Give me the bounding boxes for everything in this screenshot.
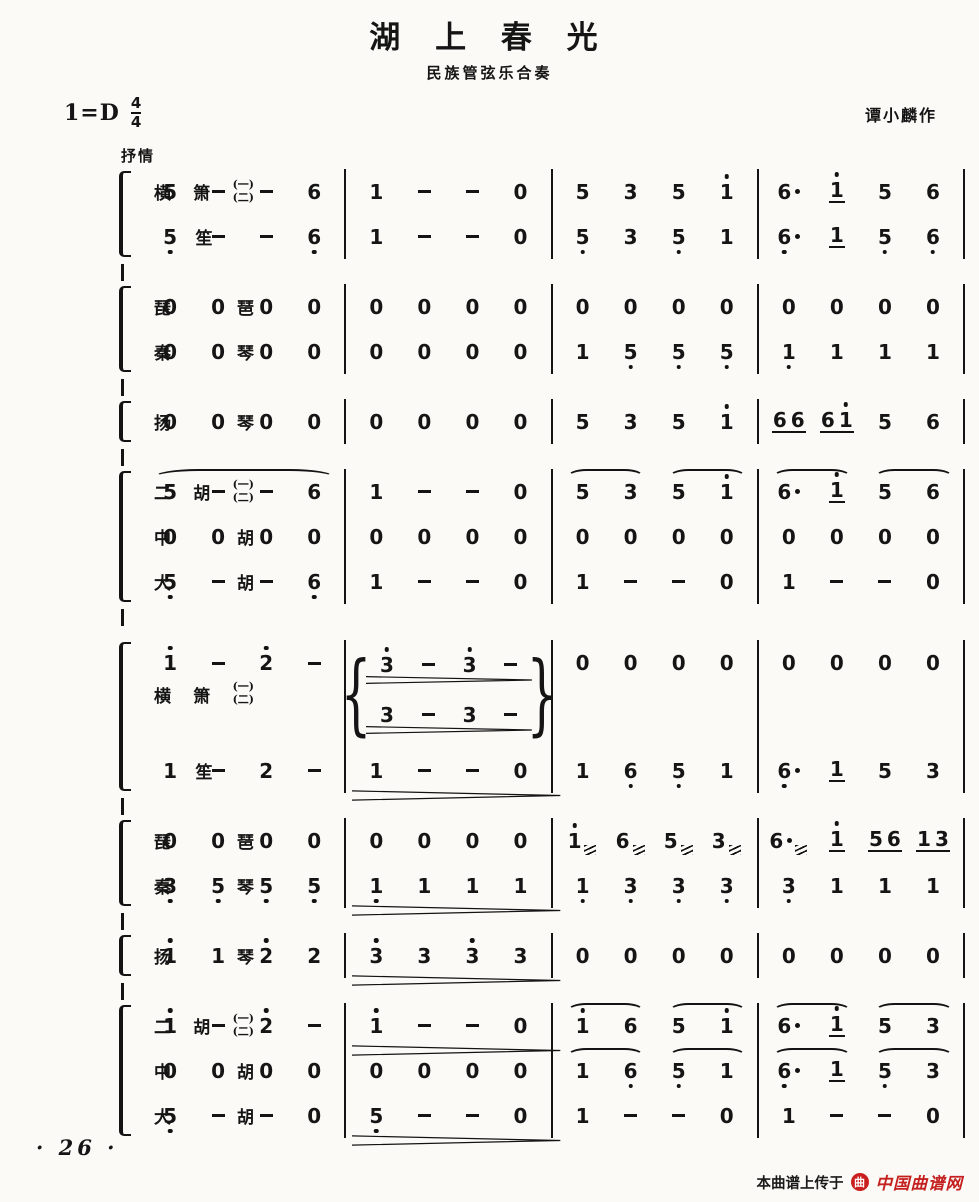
beat-row: 5351 bbox=[553, 399, 757, 444]
beat-row: 0000 bbox=[759, 514, 963, 559]
beat-group: 0 bbox=[925, 572, 941, 592]
note: 6 bbox=[777, 1016, 791, 1036]
beat: 5 bbox=[655, 412, 703, 432]
note: 6 bbox=[791, 410, 805, 430]
measure: 0000 bbox=[759, 933, 965, 978]
system-1: 横箫(一)(二)561053516156笙561053516156琵琶00000… bbox=[10, 169, 965, 604]
measure: 50 bbox=[346, 1093, 552, 1138]
beat-group: 0 bbox=[464, 342, 480, 362]
beat-group bbox=[307, 769, 322, 772]
measure: 3111 bbox=[759, 863, 965, 908]
beat: 0 bbox=[146, 297, 194, 317]
beat: 3 bbox=[449, 705, 490, 725]
beat-group: 0 bbox=[719, 572, 735, 592]
beat: 13 bbox=[909, 829, 957, 853]
note: 1 bbox=[720, 227, 734, 247]
beat-row: 0000 bbox=[346, 1048, 550, 1093]
beat: 0 bbox=[607, 653, 655, 673]
note: 3 bbox=[417, 946, 431, 966]
note: 1 bbox=[782, 572, 796, 592]
rest-note: 0 bbox=[720, 572, 734, 592]
group-bracket bbox=[119, 642, 131, 791]
note: 1 bbox=[720, 482, 734, 502]
beat: 0 bbox=[655, 653, 703, 673]
beat-group: 1 bbox=[368, 182, 384, 202]
beat-group: 5 bbox=[671, 412, 687, 432]
tremolo-mark bbox=[584, 845, 596, 855]
system-2: 横箫(一)(二)12{3333}00000000笙121016516153琵琶0… bbox=[10, 640, 965, 1138]
beat-group: 5 bbox=[575, 482, 591, 502]
note: 5 bbox=[672, 482, 686, 502]
note: 5 bbox=[211, 876, 225, 896]
note: 5 bbox=[369, 1106, 383, 1126]
beat: 1 bbox=[813, 1059, 861, 1083]
beat: 5 bbox=[655, 1061, 703, 1081]
note: 2 bbox=[259, 653, 273, 673]
beat-group: 6 bbox=[306, 572, 322, 592]
rest-note: 0 bbox=[926, 527, 940, 547]
rest-note: 0 bbox=[830, 946, 844, 966]
rest-note: 0 bbox=[465, 412, 479, 432]
beat-row: 10 bbox=[346, 214, 550, 259]
beat: 0 bbox=[242, 1061, 290, 1081]
beat: 0 bbox=[400, 412, 448, 432]
beat: 0 bbox=[909, 946, 957, 966]
beat-group: 3 bbox=[462, 705, 478, 725]
sustain-dash bbox=[466, 769, 479, 772]
beat: 5 bbox=[655, 761, 703, 781]
beat-group: 0 bbox=[162, 297, 178, 317]
note: 1 bbox=[576, 1106, 590, 1126]
watermark: 本曲谱上传于 曲 中国曲谱网 bbox=[757, 1170, 964, 1194]
beat-group bbox=[623, 580, 638, 583]
notation-row-erhu: 二胡(一)(二)561053516156 bbox=[140, 469, 965, 514]
beat bbox=[242, 580, 290, 583]
rest-note: 0 bbox=[369, 831, 383, 851]
note: 5 bbox=[576, 182, 590, 202]
site-name-link[interactable]: 中国曲谱网 bbox=[876, 1170, 964, 1194]
note: 6 bbox=[777, 227, 791, 247]
sustain-dash bbox=[212, 580, 225, 583]
voice-brace-left: { bbox=[352, 641, 361, 747]
beat: 1 bbox=[703, 412, 751, 432]
key-signature: 1=D bbox=[64, 100, 120, 126]
beat-group: 2 bbox=[306, 946, 322, 966]
beat-group: 13 bbox=[916, 829, 950, 853]
rest-note: 0 bbox=[830, 297, 844, 317]
note: 6 bbox=[926, 227, 940, 247]
group-bracket bbox=[119, 401, 131, 442]
beat: 5 bbox=[655, 482, 703, 502]
rest-note: 0 bbox=[514, 482, 528, 502]
beat: 0 bbox=[448, 527, 496, 547]
rest-note: 0 bbox=[878, 527, 892, 547]
beat: 0 bbox=[909, 297, 957, 317]
note: 6 bbox=[821, 410, 835, 430]
beat-group: 1 bbox=[829, 225, 845, 249]
note: 1 bbox=[782, 342, 796, 362]
beat-group: 6 bbox=[623, 1061, 639, 1081]
beat-group bbox=[417, 1114, 432, 1117]
beat: 0 bbox=[703, 297, 751, 317]
beat-row: 0000 bbox=[759, 284, 963, 329]
beat-group: 1 bbox=[368, 1016, 384, 1036]
augmentation-dot bbox=[795, 489, 800, 494]
beat: 5 bbox=[242, 876, 290, 896]
beat-group: 1 bbox=[575, 572, 591, 592]
beat-group: 1 bbox=[575, 876, 591, 896]
beat: 5 bbox=[703, 342, 751, 362]
measure: 12 bbox=[140, 640, 346, 748]
rest-note: 0 bbox=[672, 653, 686, 673]
notation-row-qinqin: 秦琴0000000015551111 bbox=[140, 329, 965, 374]
rest-note: 0 bbox=[417, 527, 431, 547]
beat: 0 bbox=[194, 1061, 242, 1081]
beat: 5 bbox=[146, 227, 194, 247]
beat: 5 bbox=[861, 482, 909, 502]
sustain-dash bbox=[466, 1114, 479, 1117]
page-title: 湖 上 春 光 bbox=[0, 12, 979, 57]
beat-group bbox=[877, 580, 892, 583]
beat bbox=[813, 580, 861, 583]
beat: 1 bbox=[813, 829, 861, 853]
beat: 1 bbox=[194, 946, 242, 966]
beat-group: 0 bbox=[671, 527, 687, 547]
beat-group: 6 bbox=[623, 761, 639, 781]
beat: 5 bbox=[861, 227, 909, 247]
group-bracket bbox=[119, 286, 131, 372]
beat: 0 bbox=[496, 1106, 544, 1126]
note: 1 bbox=[369, 482, 383, 502]
beat: 3 bbox=[366, 655, 407, 675]
sustain-dash bbox=[466, 235, 479, 238]
beat-group: 1 bbox=[719, 227, 735, 247]
note: 1 bbox=[163, 1016, 177, 1036]
measures: 561053516156 bbox=[140, 214, 965, 259]
rest-note: 0 bbox=[163, 297, 177, 317]
note: 3 bbox=[514, 946, 528, 966]
beat-group bbox=[465, 1114, 480, 1117]
site-logo-icon[interactable]: 曲 bbox=[851, 1173, 869, 1191]
measures: 12{3333}00000000 bbox=[140, 640, 965, 748]
note: 1 bbox=[576, 572, 590, 592]
beat-group: 1 bbox=[368, 482, 384, 502]
beat bbox=[448, 1114, 496, 1117]
note: 2 bbox=[259, 946, 273, 966]
measure: 56 bbox=[140, 469, 346, 514]
beat-group: 0 bbox=[464, 527, 480, 547]
rest-note: 0 bbox=[514, 182, 528, 202]
note: 5 bbox=[672, 342, 686, 362]
note: 1 bbox=[720, 182, 734, 202]
measure: 10 bbox=[346, 214, 552, 259]
sustain-dash bbox=[466, 1024, 479, 1027]
note: 3 bbox=[624, 482, 638, 502]
note: 3 bbox=[926, 761, 940, 781]
sustain-dash bbox=[466, 490, 479, 493]
beat-group: 1 bbox=[719, 482, 735, 502]
beat: 0 bbox=[703, 572, 751, 592]
rest-note: 0 bbox=[465, 527, 479, 547]
note: 1 bbox=[830, 876, 844, 896]
score-page: 湖 上 春 光 民族管弦乐合奏 1=D 4 4 谭小麟作 抒情 横箫(一)(二)… bbox=[0, 0, 979, 1202]
rest-note: 0 bbox=[624, 653, 638, 673]
beat-group: 1 bbox=[829, 1014, 845, 1038]
beat-row: 6156 bbox=[759, 469, 963, 514]
rest-note: 0 bbox=[163, 831, 177, 851]
decrescendo-hairpin bbox=[366, 676, 532, 684]
beat-group: 0 bbox=[575, 653, 591, 673]
beat-group bbox=[211, 1114, 226, 1117]
beat-group: 0 bbox=[671, 946, 687, 966]
beat: 0 bbox=[400, 831, 448, 851]
beat-group bbox=[421, 713, 436, 716]
beat-group: 1 bbox=[781, 342, 797, 362]
beat-row: 1122 bbox=[140, 933, 344, 978]
beat-group bbox=[259, 235, 274, 238]
beat: 0 bbox=[559, 653, 607, 673]
beat: 5 bbox=[861, 182, 909, 202]
beat-group bbox=[211, 235, 226, 238]
beat-group: 0 bbox=[258, 1061, 274, 1081]
beat: 5 bbox=[146, 482, 194, 502]
beat-group: 3 bbox=[462, 655, 478, 675]
beat-row: 10 bbox=[759, 1093, 963, 1138]
beat: 0 bbox=[559, 527, 607, 547]
beat-row: 6153 bbox=[759, 748, 963, 793]
measure: 0000 bbox=[553, 640, 759, 748]
beat-group: 0 bbox=[162, 1061, 178, 1081]
rest-note: 0 bbox=[307, 342, 321, 362]
beat: 0 bbox=[290, 831, 338, 851]
beat: 5 bbox=[290, 876, 338, 896]
beat-group bbox=[829, 580, 844, 583]
rest-note: 0 bbox=[878, 297, 892, 317]
beat-group: 1 bbox=[829, 480, 845, 504]
tempo-marking: 抒情 bbox=[121, 145, 155, 166]
rest-note: 0 bbox=[307, 297, 321, 317]
beat-group: 3 bbox=[925, 1061, 941, 1081]
beat: 0 bbox=[496, 182, 544, 202]
measure: 5351 bbox=[553, 469, 759, 514]
beat-group: 0 bbox=[719, 527, 735, 547]
group-bracket bbox=[119, 171, 131, 257]
note: 1 bbox=[878, 876, 892, 896]
beat bbox=[408, 663, 449, 666]
sustain-dash bbox=[260, 235, 273, 238]
rest-note: 0 bbox=[211, 831, 225, 851]
note: 1 bbox=[878, 342, 892, 362]
measure: 6156 bbox=[759, 214, 965, 259]
beat-group bbox=[417, 769, 432, 772]
measure: 3333 bbox=[346, 933, 552, 978]
instrument-group: 二胡(一)(二)121016516153中胡0000000016516153大胡… bbox=[10, 1003, 965, 1138]
beat-group: 3 bbox=[623, 482, 639, 502]
measure: 12 bbox=[140, 748, 346, 793]
beat: 0 bbox=[448, 342, 496, 362]
rest-note: 0 bbox=[576, 653, 590, 673]
beat: 1 bbox=[813, 480, 861, 504]
beat: 0 bbox=[352, 342, 400, 362]
beat-group: 6 bbox=[776, 182, 801, 202]
note: 1 bbox=[830, 1014, 844, 1034]
beat-group: 1 bbox=[877, 876, 893, 896]
time-signature-numerator: 4 bbox=[129, 96, 143, 112]
note: 3 bbox=[380, 655, 394, 675]
note: 6 bbox=[926, 412, 940, 432]
beat-group bbox=[417, 190, 432, 193]
beat: 5 bbox=[655, 182, 703, 202]
beat: 5 bbox=[861, 761, 909, 781]
rest-note: 0 bbox=[163, 412, 177, 432]
measure: 6153 bbox=[759, 748, 965, 793]
beat-group: 5 bbox=[877, 1061, 893, 1081]
beat-row: 33 bbox=[364, 705, 533, 725]
note: 1 bbox=[720, 412, 734, 432]
note: 6 bbox=[307, 227, 321, 247]
beat-group: 5 bbox=[575, 182, 591, 202]
note: 6 bbox=[307, 572, 321, 592]
beat-group: 0 bbox=[925, 297, 941, 317]
rest-note: 0 bbox=[514, 831, 528, 851]
beat-group: 0 bbox=[925, 527, 941, 547]
beat bbox=[408, 713, 449, 716]
beat bbox=[242, 1114, 290, 1117]
beat-group: 1 bbox=[829, 876, 845, 896]
rest-note: 0 bbox=[926, 1106, 940, 1126]
beat: 1 bbox=[559, 1016, 607, 1036]
measures: 0000000000000000 bbox=[140, 514, 965, 559]
beat-group: 6 bbox=[306, 227, 322, 247]
beat: 1 bbox=[559, 831, 607, 851]
rest-note: 0 bbox=[259, 297, 273, 317]
beat: 1 bbox=[146, 1016, 194, 1036]
beat-group: 5 bbox=[162, 227, 178, 247]
rest-note: 0 bbox=[624, 527, 638, 547]
sustain-dash bbox=[672, 580, 685, 583]
beat: 1 bbox=[559, 876, 607, 896]
note: 1 bbox=[369, 876, 383, 896]
beat-group: 5 bbox=[258, 876, 274, 896]
beat-group: 1 bbox=[575, 1106, 591, 1126]
beat: 0 bbox=[496, 761, 544, 781]
beat-group: 0 bbox=[306, 1106, 322, 1126]
beat: 1 bbox=[703, 1061, 751, 1081]
beat: 6 bbox=[765, 1061, 813, 1081]
rest-note: 0 bbox=[417, 831, 431, 851]
measure: 0000 bbox=[346, 1048, 552, 1093]
time-signature-denominator: 4 bbox=[131, 112, 141, 130]
sustain-dash bbox=[418, 1114, 431, 1117]
beat-group: 1 bbox=[925, 876, 941, 896]
beat-group: 1 bbox=[464, 876, 480, 896]
beat: 5 bbox=[655, 831, 703, 851]
beat-group: 1 bbox=[575, 342, 591, 362]
rest-note: 0 bbox=[307, 527, 321, 547]
note: 5 bbox=[672, 1061, 686, 1081]
rest-note: 0 bbox=[830, 653, 844, 673]
beat: 0 bbox=[146, 831, 194, 851]
beat-group: 5 bbox=[623, 342, 639, 362]
rest-note: 0 bbox=[307, 412, 321, 432]
beat-group bbox=[465, 490, 480, 493]
beat-group: 0 bbox=[210, 1061, 226, 1081]
note: 1 bbox=[568, 831, 582, 851]
beat: 5 bbox=[655, 227, 703, 247]
beat-group bbox=[877, 1114, 892, 1117]
beat bbox=[655, 580, 703, 583]
note: 6 bbox=[624, 1061, 638, 1081]
beat: 1 bbox=[352, 572, 400, 592]
beat-group: 3 bbox=[379, 655, 395, 675]
beat-row: 0000 bbox=[140, 818, 344, 863]
beat-group: 3 bbox=[623, 412, 639, 432]
beat-row: 56 bbox=[140, 559, 344, 604]
sustain-dash bbox=[418, 769, 431, 772]
beat: 0 bbox=[655, 946, 703, 966]
beat-group: 0 bbox=[416, 527, 432, 547]
rest-note: 0 bbox=[926, 572, 940, 592]
beat: 0 bbox=[400, 1061, 448, 1081]
rest-note: 0 bbox=[417, 412, 431, 432]
beat: 6 bbox=[909, 412, 957, 432]
beat-group: 5 bbox=[877, 182, 893, 202]
beat-row: 0000 bbox=[759, 640, 963, 686]
beat-group: 1 bbox=[719, 1061, 735, 1081]
beat bbox=[861, 580, 909, 583]
beat-group bbox=[259, 490, 274, 493]
beat-row: 12 bbox=[140, 748, 344, 793]
rest-note: 0 bbox=[514, 297, 528, 317]
beat bbox=[448, 769, 496, 772]
beat bbox=[194, 190, 242, 193]
beat-group: 0 bbox=[210, 412, 226, 432]
beat-group: 56 bbox=[868, 829, 902, 853]
beat bbox=[861, 1114, 909, 1117]
beat: 0 bbox=[496, 412, 544, 432]
note: 1 bbox=[576, 761, 590, 781]
note: 3 bbox=[672, 876, 686, 896]
beat: 0 bbox=[290, 412, 338, 432]
beat-row: 1555 bbox=[553, 329, 757, 374]
note: 1 bbox=[720, 761, 734, 781]
beat bbox=[400, 769, 448, 772]
beat: 1 bbox=[559, 761, 607, 781]
beat: 6 bbox=[607, 1061, 655, 1081]
beat-group: 0 bbox=[162, 831, 178, 851]
beat-row: 10 bbox=[553, 1093, 757, 1138]
beat: 0 bbox=[400, 527, 448, 547]
beat-group bbox=[503, 713, 518, 716]
beat-group: 6 bbox=[925, 182, 941, 202]
beat-group bbox=[829, 1114, 844, 1117]
notation-row-dahu: 大胡50501010 bbox=[140, 1093, 965, 1138]
beat: 3 bbox=[703, 876, 751, 896]
beat: 3 bbox=[607, 182, 655, 202]
beat-row: 6156 bbox=[759, 169, 963, 214]
measure: 1111 bbox=[759, 329, 965, 374]
note: 6 bbox=[887, 829, 901, 849]
rest-note: 0 bbox=[369, 297, 383, 317]
beat-group bbox=[307, 1024, 322, 1027]
beat: 0 bbox=[496, 1061, 544, 1081]
notation-row-zhonghu: 中胡0000000000000000 bbox=[140, 514, 965, 559]
beat: 0 bbox=[242, 412, 290, 432]
beat-row: 0000 bbox=[140, 1048, 344, 1093]
rest-note: 0 bbox=[514, 342, 528, 362]
note: 5 bbox=[878, 1016, 892, 1036]
note: 3 bbox=[163, 876, 177, 896]
